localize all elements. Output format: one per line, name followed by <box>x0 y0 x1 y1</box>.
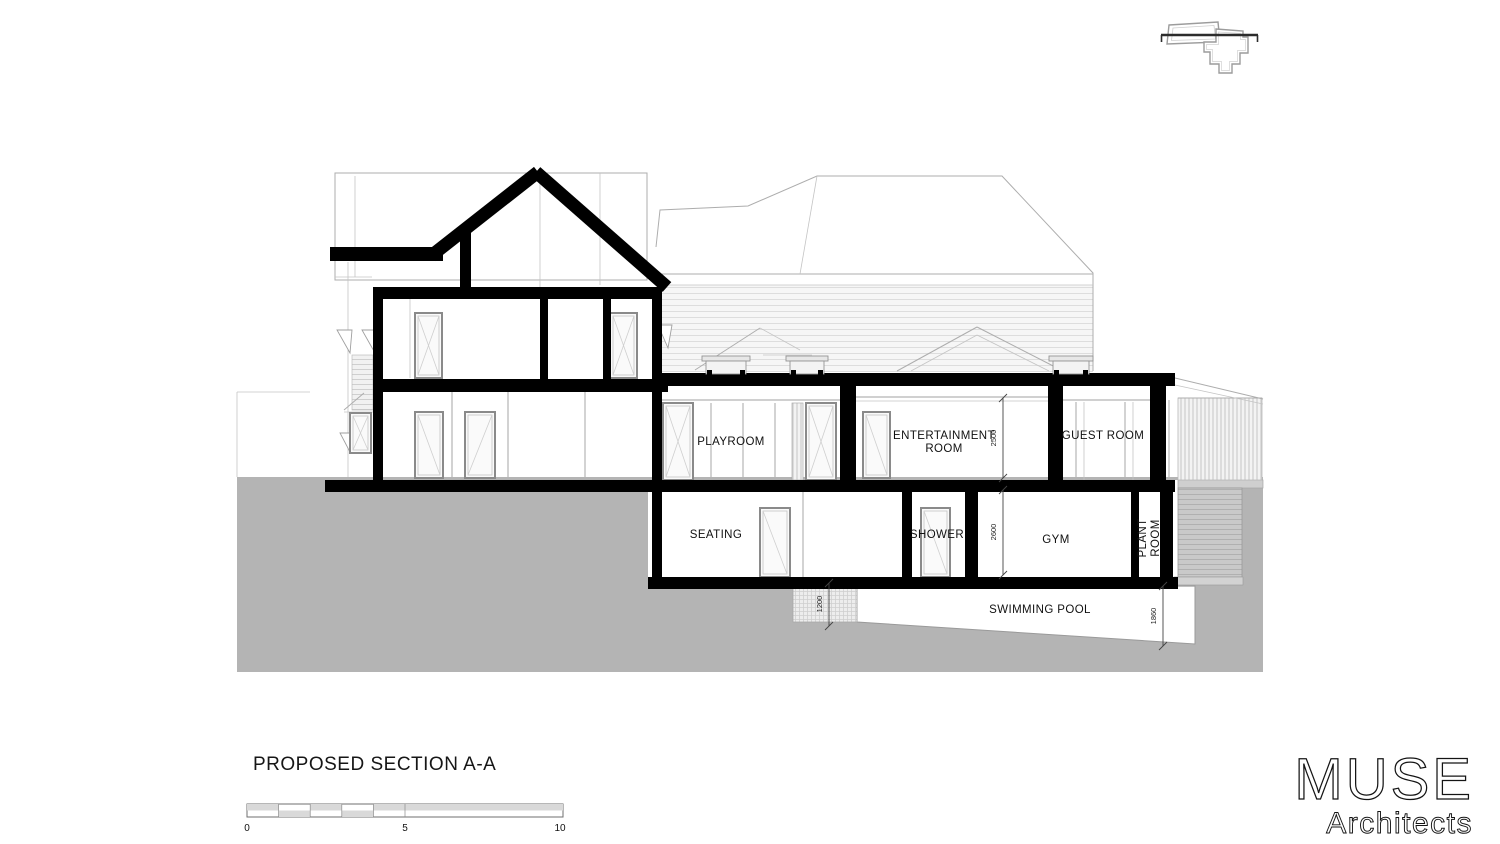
scale-tick-0: 0 <box>244 823 250 834</box>
label-entertainment-1: ENTERTAINMENT <box>893 430 995 442</box>
rooflight-2 <box>786 356 828 377</box>
logo-subtitle: Architects <box>1326 807 1473 840</box>
ground-floor-slab <box>325 480 1175 492</box>
drawing-title: PROPOSED SECTION A-A <box>253 754 496 775</box>
svg-text:PLANT: PLANT <box>1137 518 1149 557</box>
ground-door-2 <box>465 412 495 478</box>
bay-window <box>350 413 371 453</box>
extension-roof-slab <box>655 373 1175 386</box>
label-entertainment-2: ROOM <box>925 443 962 455</box>
scale-tick-5: 5 <box>402 823 408 834</box>
label-playroom: PLAYROOM <box>697 436 765 448</box>
flat-roof-band <box>330 247 443 261</box>
logo: MUSE Architects <box>1294 747 1474 840</box>
upper-window-left <box>415 313 442 378</box>
svg-text:2600: 2600 <box>989 524 998 541</box>
svg-text:1200: 1200 <box>815 596 824 613</box>
label-shower: SHOWER <box>910 529 964 541</box>
label-seating: SEATING <box>690 529 742 541</box>
scale-bar: 0 5 10 <box>244 804 566 834</box>
upper-window-right <box>610 313 637 378</box>
entertainment-door <box>863 412 890 478</box>
label-gym: GYM <box>1042 534 1069 546</box>
scale-tick-10: 10 <box>554 823 566 834</box>
logo-name: MUSE <box>1294 747 1474 812</box>
brick-pier-hatch <box>352 355 373 410</box>
fence-hatch <box>1178 398 1262 480</box>
seating-door <box>760 508 790 577</box>
roof-slope-left <box>431 172 538 256</box>
architectural-drawing-sheet: 2500 2600 1200 1860 PLAYROOM ENTERTAINME… <box>0 0 1500 844</box>
label-plant-room: PLANT ROOM <box>1137 518 1162 557</box>
section-drawing-canvas: 2500 2600 1200 1860 PLAYROOM ENTERTAINME… <box>0 0 1500 844</box>
pool-steps-hatch <box>793 588 857 622</box>
basement-slab <box>648 577 1178 589</box>
rooflight-3 <box>1049 356 1093 377</box>
rooflight-1 <box>702 356 750 377</box>
ground-door-1 <box>415 412 443 478</box>
attic-post <box>460 230 471 289</box>
shower-door <box>921 508 950 577</box>
svg-text:ROOM: ROOM <box>1150 519 1162 556</box>
second-floor-slab <box>373 287 662 299</box>
key-plan <box>1161 22 1258 73</box>
svg-text:1860: 1860 <box>1149 608 1158 625</box>
blind-hatch <box>792 403 803 480</box>
label-swimming-pool: SWIMMING POOL <box>989 604 1091 616</box>
label-guest-room: GUEST ROOM <box>1062 430 1144 442</box>
title-block: PROPOSED SECTION A-A 0 5 10 <box>244 754 566 834</box>
retaining-wall-hatch <box>1178 488 1242 577</box>
first-floor-slab <box>373 379 668 392</box>
